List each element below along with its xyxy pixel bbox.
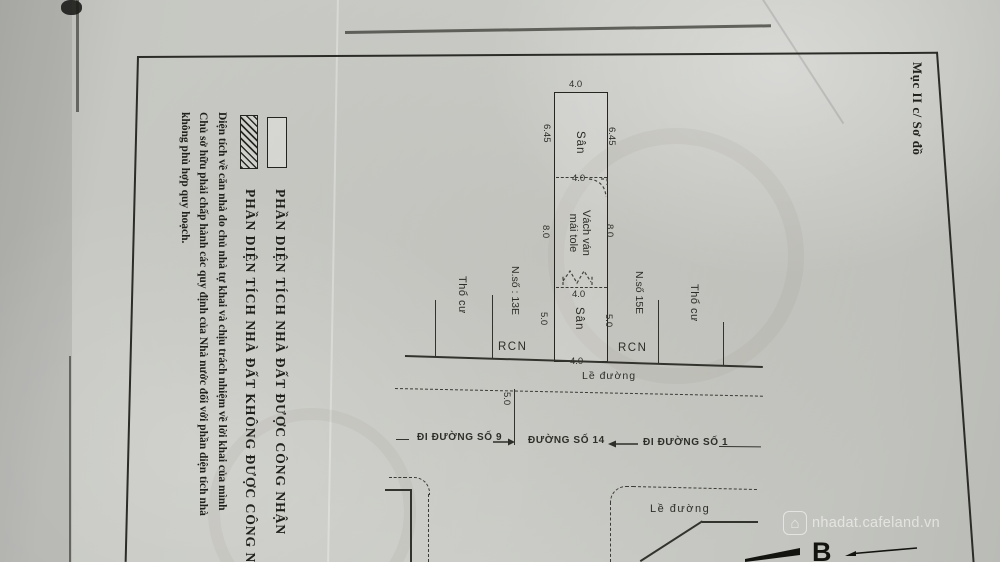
compass-label: B xyxy=(812,537,832,562)
left-neighbor-label: N.số : 13E xyxy=(509,266,521,315)
paper-edge-mark-bottom xyxy=(69,356,71,562)
legend-swatch-recognized xyxy=(267,117,287,168)
plot-divider-2 xyxy=(556,287,607,288)
dim-divider-2: 4.0 xyxy=(572,289,585,300)
arrow-left-icon xyxy=(608,439,638,449)
house-label-line2: mái tole xyxy=(566,210,579,256)
dim-divider-1: 4.0 xyxy=(572,173,585,184)
corner-right-solid-h xyxy=(702,521,758,523)
dim-width-top: 4.0 xyxy=(569,79,582,90)
paper-left-margin-shade xyxy=(0,0,72,562)
road-to-right-label: ĐI ĐƯỜNG SỐ 1 xyxy=(643,437,728,448)
corner-left-dashed-v xyxy=(428,494,429,562)
corner-left-solid-v xyxy=(410,489,412,562)
dim-yard-top-left: 6.45 xyxy=(541,124,552,143)
road-name-label: ĐƯỜNG SỐ 14 xyxy=(528,435,605,446)
note-line-3: không phù hợp quy hoạch. xyxy=(179,112,191,243)
right-neighbor-label: N.số 15E xyxy=(633,271,645,314)
door-swing-icon xyxy=(586,176,610,199)
house-label-line1: Vách ván xyxy=(579,210,592,256)
note-line-1: Diện tích về căn nhà do chủ nhà tự khai … xyxy=(216,112,228,511)
yard-top-label: Sân xyxy=(574,131,586,154)
left-area-label: Thổ cư xyxy=(456,276,468,314)
dim-yard-top-right: 6.45 xyxy=(606,127,617,146)
road-to-left-label: ĐI ĐƯỜNG SỐ 9 xyxy=(417,432,502,443)
stairs-icon xyxy=(561,269,595,287)
rcn-left-label: RCN xyxy=(498,341,527,353)
lot-tick-1 xyxy=(435,300,436,357)
lot-tick-4 xyxy=(723,322,724,365)
rcn-right-label: RCN xyxy=(618,342,647,354)
paper-edge-mark-top xyxy=(76,0,79,112)
road-halfwidth-dim: 5.0 xyxy=(501,392,512,405)
legend-swatch-not-recognized xyxy=(240,115,258,169)
curb-top-label: Lề đường xyxy=(582,370,636,382)
legend-label-recognized: PHẦN DIỆN TÍCH NHÀ ĐẤT ĐƯỢC CÔNG NHẬN xyxy=(272,189,288,535)
legend-label-not-recognized: PHẦN DIỆN TÍCH NHÀ ĐẤT KHÔNG ĐƯỢC CÔNG N… xyxy=(242,189,258,562)
curb-bottom-label: Lề đường xyxy=(650,503,710,515)
lot-tick-2 xyxy=(492,295,493,359)
dim-house-left: 8.0 xyxy=(540,225,551,238)
dim-yard-bottom-right: 5.0 xyxy=(603,314,614,327)
corner-right-dashed-v xyxy=(610,502,611,562)
house-label: Vách ván mái tole xyxy=(566,210,592,256)
right-area-label: Thổ cư xyxy=(688,284,700,322)
arrow-right-icon xyxy=(493,437,516,447)
road-row-left-dash xyxy=(396,439,409,440)
lot-tick-3 xyxy=(658,300,659,363)
paper-background xyxy=(0,0,1000,562)
note-line-2: Chủ sở hữu phải chấp hành các quy định c… xyxy=(197,112,209,516)
watermark: ⌂ nhadat.cafeland.vn xyxy=(783,511,940,535)
ink-blob xyxy=(61,0,82,15)
dim-house-right: 8.0 xyxy=(604,224,615,237)
dim-yard-bottom-left: 5.0 xyxy=(538,312,549,325)
house-icon: ⌂ xyxy=(783,511,807,535)
watermark-text: nhadat.cafeland.vn xyxy=(812,515,940,531)
section-label: Mục II c/ Sơ đồ xyxy=(909,62,925,155)
north-arrow-icon xyxy=(745,543,920,562)
scanned-document: Mục II c/ Sơ đồ PHẦN DIỆN TÍCH NHÀ ĐẤT Đ… xyxy=(0,0,1000,562)
yard-bottom-label: Sân xyxy=(573,307,585,330)
